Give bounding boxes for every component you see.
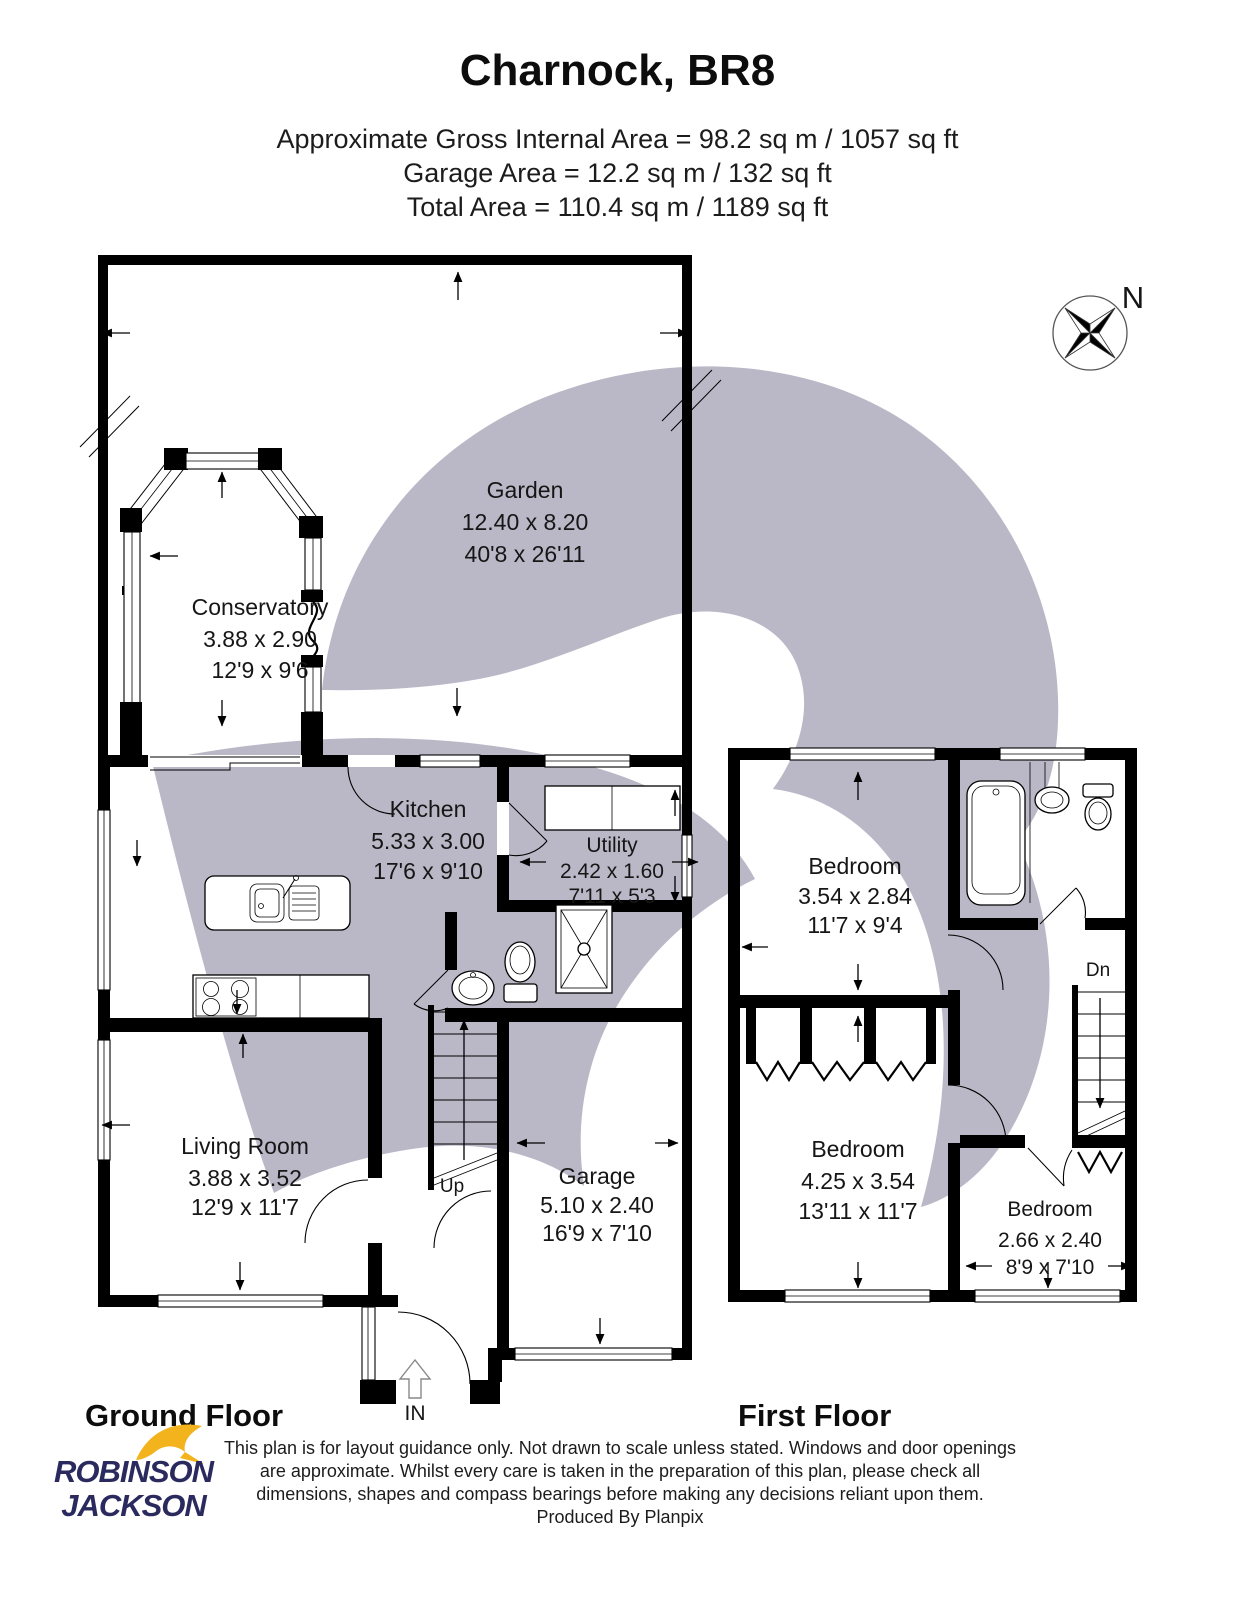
utility-metric: 2.42 x 1.60 [560, 860, 664, 883]
bedroom3-label: Bedroom [1007, 1198, 1092, 1221]
robinson-jackson-logo: ROBINSON JACKSON [46, 1420, 221, 1540]
compass-north-label: N [1122, 280, 1144, 315]
bathroom-toilet-icon [1083, 784, 1113, 830]
bedroom2-metric: 4.25 x 3.54 [801, 1168, 915, 1194]
utility-label: Utility [586, 834, 638, 857]
kitchen-island-sink [205, 876, 350, 931]
bedroom3-metric: 2.66 x 2.40 [998, 1229, 1102, 1252]
stairs-dn-label: Dn [1086, 960, 1110, 981]
stairs-first [1078, 992, 1125, 1140]
entrance-arrow-icon [400, 1360, 430, 1398]
conservatory-metric: 3.88 x 2.90 [203, 626, 317, 652]
toilet-icon [504, 942, 537, 1002]
disclaimer-line-1: This plan is for layout guidance only. N… [210, 1437, 1030, 1460]
basin-icon [452, 971, 494, 1005]
first-floor-title: First Floor [738, 1398, 891, 1434]
garden-label: Garden [487, 477, 564, 503]
entrance-in-label: IN [405, 1402, 426, 1425]
compass-icon: N [1053, 280, 1144, 370]
bedroom1-imperial: 11'7 x 9'4 [807, 912, 903, 938]
conservatory-imperial: 12'9 x 9'6 [211, 657, 308, 683]
stairs-up-label: Up [440, 1176, 464, 1197]
floorplan-drawing: Garden 12.40 x 8.20 40'8 x 26'11 Conserv… [0, 0, 1235, 1600]
living-room-label: Living Room [181, 1133, 309, 1159]
kitchen-label: Kitchen [390, 796, 467, 822]
garage-imperial: 16'9 x 7'10 [542, 1220, 652, 1246]
wardrobes [756, 1062, 926, 1080]
disclaimer: This plan is for layout guidance only. N… [210, 1437, 1030, 1529]
bedroom3-imperial: 8'9 x 7'10 [1006, 1256, 1095, 1279]
bedroom1-metric: 3.54 x 2.84 [798, 883, 912, 909]
bedroom1-label: Bedroom [808, 853, 901, 879]
bedroom2-imperial: 13'11 x 11'7 [798, 1198, 917, 1224]
kitchen-metric: 5.33 x 3.00 [371, 828, 485, 854]
utility-counter [545, 786, 680, 830]
garden-metric: 12.40 x 8.20 [462, 509, 589, 535]
garden-imperial: 40'8 x 26'11 [465, 541, 586, 567]
shower-icon [556, 905, 612, 993]
garage-label: Garage [559, 1163, 636, 1189]
living-room-imperial: 12'9 x 11'7 [191, 1194, 299, 1220]
brand-line-1: ROBINSON [46, 1454, 221, 1490]
garage-metric: 5.10 x 2.40 [540, 1192, 654, 1218]
kitchen-hob-counter [193, 975, 369, 1018]
bedroom2-label: Bedroom [811, 1136, 904, 1162]
utility-imperial: 7'11 x 5'3 [568, 885, 655, 908]
disclaimer-line-3: dimensions, shapes and compass bearings … [210, 1483, 1030, 1506]
kitchen-imperial: 17'6 x 9'10 [373, 858, 483, 884]
living-room-metric: 3.88 x 3.52 [188, 1165, 302, 1191]
disclaimer-line-2: are approximate. Whilst every care is ta… [210, 1460, 1030, 1483]
disclaimer-line-4: Produced By Planpix [210, 1506, 1030, 1529]
conservatory-label: Conservatory [192, 594, 329, 620]
brand-line-2: JACKSON [46, 1488, 221, 1524]
floorplan-page: Charnock, BR8 Approximate Gross Internal… [0, 0, 1235, 1600]
